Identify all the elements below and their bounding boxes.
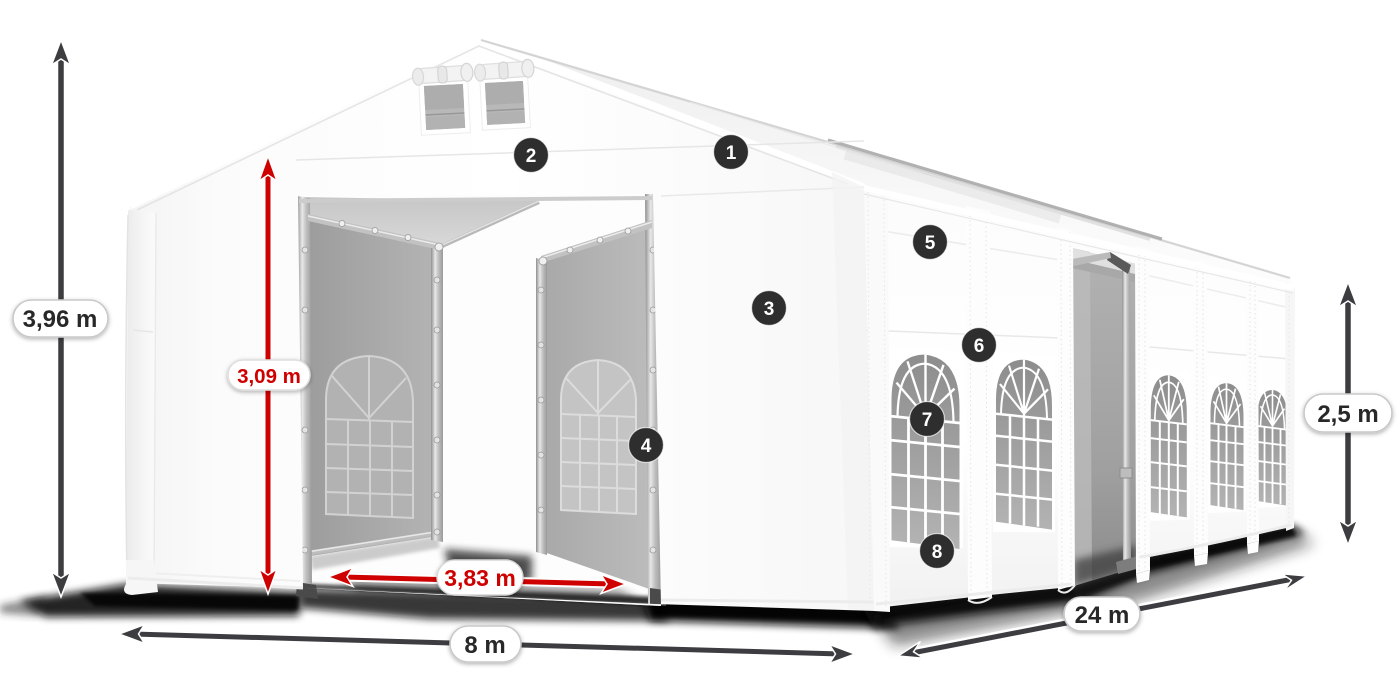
svg-text:2: 2	[526, 146, 537, 167]
svg-text:3,83 m: 3,83 m	[444, 565, 516, 591]
svg-text:3,96 m: 3,96 m	[23, 306, 98, 333]
svg-text:8: 8	[932, 542, 943, 563]
svg-text:4: 4	[641, 436, 652, 457]
svg-text:1: 1	[726, 143, 737, 164]
svg-text:8 m: 8 m	[464, 632, 505, 659]
svg-text:3,09 m: 3,09 m	[237, 365, 301, 388]
svg-text:5: 5	[925, 233, 936, 254]
svg-text:6: 6	[974, 336, 985, 357]
svg-text:3: 3	[764, 299, 775, 320]
svg-text:24 m: 24 m	[1075, 602, 1130, 629]
svg-text:2,5 m: 2,5 m	[1317, 401, 1378, 428]
svg-text:7: 7	[922, 410, 933, 431]
